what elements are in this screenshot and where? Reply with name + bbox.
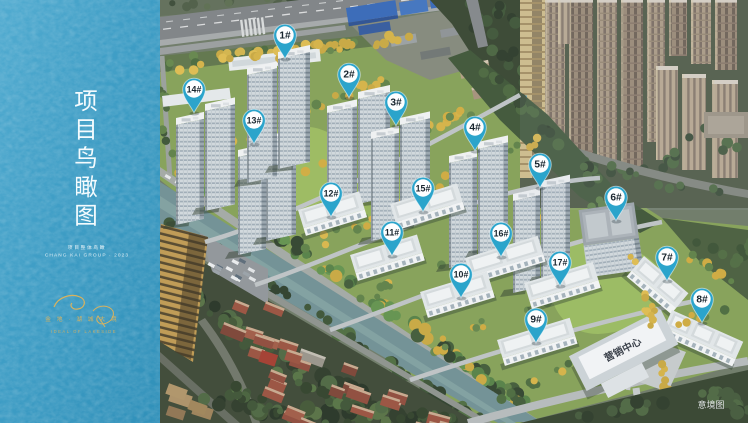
- svg-text:1#: 1#: [279, 30, 291, 41]
- svg-text:12#: 12#: [324, 188, 339, 198]
- svg-text:10#: 10#: [454, 269, 469, 279]
- svg-text:项目整体鸟瞰: 项目整体鸟瞰: [68, 244, 106, 251]
- svg-text:5#: 5#: [534, 159, 546, 170]
- svg-text:16#: 16#: [494, 228, 509, 238]
- svg-text:鸟: 鸟: [74, 145, 98, 172]
- svg-text:4#: 4#: [469, 122, 481, 133]
- svg-text:8#: 8#: [696, 294, 708, 305]
- svg-text:IDEAL OF LAKESIDE: IDEAL OF LAKESIDE: [51, 329, 117, 334]
- svg-text:项: 项: [74, 89, 98, 115]
- svg-text:7#: 7#: [661, 252, 673, 263]
- svg-text:15#: 15#: [416, 183, 431, 193]
- svg-text:6#: 6#: [610, 192, 622, 203]
- svg-text:目: 目: [74, 118, 98, 144]
- svg-text:11#: 11#: [385, 227, 399, 237]
- svg-text:14#: 14#: [187, 84, 202, 94]
- svg-text:金地·湖城大境: 金地·湖城大境: [45, 315, 122, 323]
- svg-text:2#: 2#: [343, 69, 355, 80]
- svg-text:13#: 13#: [247, 115, 262, 125]
- svg-text:CHANG KAI GROUP · 2023: CHANG KAI GROUP · 2023: [45, 253, 129, 259]
- svg-text:瞰: 瞰: [74, 174, 98, 201]
- svg-text:9#: 9#: [530, 314, 542, 325]
- svg-text:3#: 3#: [390, 97, 402, 108]
- svg-text:17#: 17#: [553, 257, 568, 267]
- svg-text:意境图: 意境图: [697, 399, 724, 410]
- svg-text:图: 图: [74, 203, 98, 229]
